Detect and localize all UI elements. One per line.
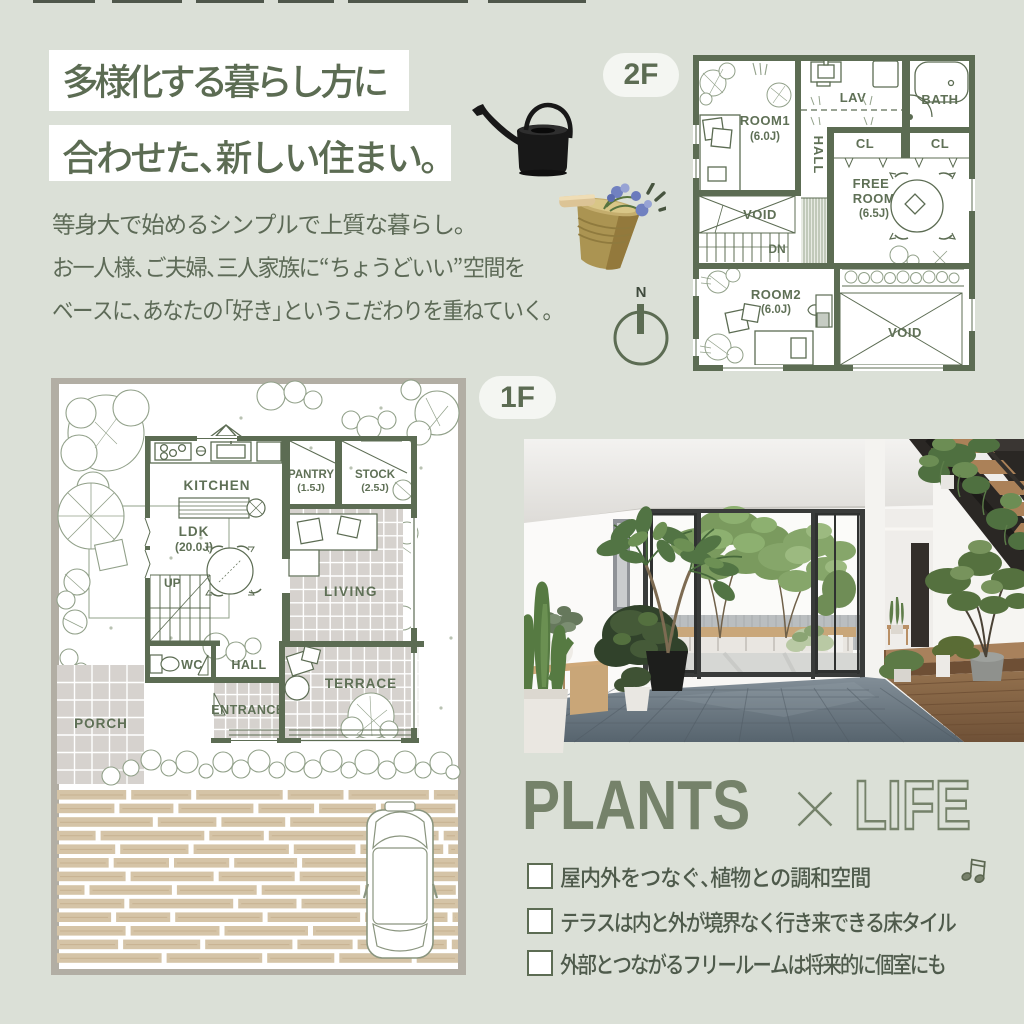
svg-text:DN: DN	[768, 242, 785, 256]
svg-text:N: N	[636, 284, 647, 301]
svg-text:(1.5J): (1.5J)	[297, 482, 324, 494]
svg-text:TERRACE: TERRACE	[325, 676, 397, 691]
svg-text:VOID: VOID	[888, 325, 922, 340]
svg-text:PORCH: PORCH	[74, 716, 128, 731]
svg-text:(2.5J): (2.5J)	[361, 482, 388, 494]
svg-text:HALL: HALL	[231, 658, 266, 672]
svg-text:(6.5J): (6.5J)	[859, 208, 889, 220]
svg-text:VOID: VOID	[743, 207, 777, 222]
svg-text:ROOM1: ROOM1	[740, 113, 790, 128]
svg-text:PANTRY: PANTRY	[288, 469, 334, 481]
svg-text:ROOM: ROOM	[853, 191, 895, 206]
svg-text:BATH: BATH	[921, 92, 958, 107]
svg-text:WC: WC	[181, 658, 203, 672]
svg-text:KITCHEN: KITCHEN	[184, 478, 251, 493]
svg-text:UP: UP	[164, 576, 181, 590]
svg-text:CL: CL	[856, 136, 874, 151]
svg-text:(6.0J): (6.0J)	[761, 304, 791, 316]
svg-text:CL: CL	[931, 136, 949, 151]
svg-text:ENTRANCE: ENTRANCE	[211, 703, 284, 717]
svg-text:LIVING: LIVING	[324, 584, 378, 599]
svg-text:LDK: LDK	[179, 524, 210, 539]
svg-text:HALL: HALL	[811, 136, 826, 175]
svg-text:FREE: FREE	[853, 176, 890, 191]
svg-text:ROOM2: ROOM2	[751, 287, 801, 302]
svg-text:(6.0J): (6.0J)	[750, 131, 780, 143]
svg-text:STOCK: STOCK	[355, 469, 396, 481]
